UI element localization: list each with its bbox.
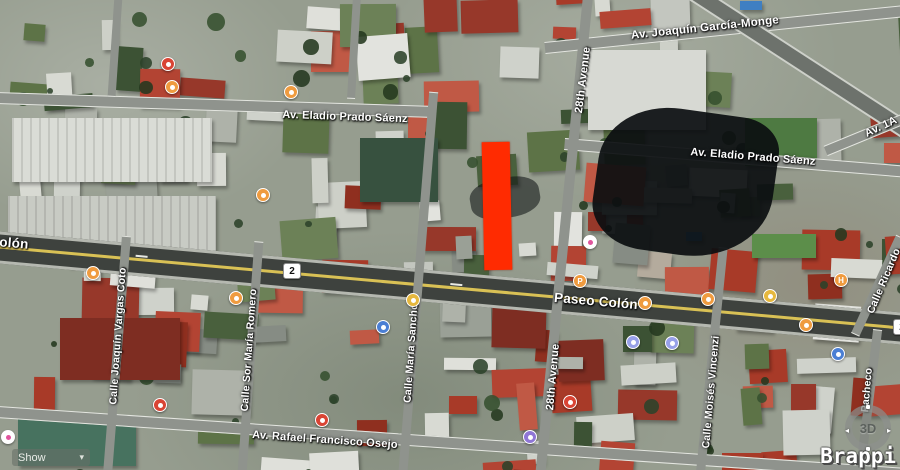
map-marker[interactable] [523,430,537,444]
rotate-right-icon: ▸ [887,427,891,435]
tilt-down-icon [866,447,870,451]
rotate-left-icon: ◂ [845,427,849,435]
show-dropdown[interactable]: Show ▾ [12,449,90,466]
map-marker[interactable] [563,395,577,409]
poi-icon [706,297,711,302]
map-marker[interactable] [626,335,640,349]
poi-icon [158,403,163,408]
map-marker[interactable] [153,398,167,412]
map-marker[interactable] [406,293,420,307]
map-marker[interactable] [763,289,777,303]
show-dropdown-label: Show [18,452,46,464]
map-marker[interactable] [165,80,179,94]
map-marker[interactable]: H [834,273,848,287]
poi-icon [170,85,175,90]
poi-icon [234,296,239,301]
poi-icon [643,301,648,306]
tilt-up-icon [866,405,870,409]
map-marker[interactable] [1,430,15,444]
map-marker[interactable] [161,57,175,71]
transit-icon [381,325,386,330]
map-marker[interactable] [665,336,679,350]
satellite-map[interactable]: Av. Joaquín García-MongeAv. Eladio Prado… [0,0,900,470]
map-marker[interactable] [256,188,270,202]
poi-icon [261,193,266,198]
hotel-icon: H [838,276,844,285]
map-marker[interactable] [315,413,329,427]
map-marker[interactable] [86,266,100,280]
poi-markers-layer: PH [0,0,900,470]
poi-icon [320,418,325,423]
poi-icon [768,294,773,299]
transit-icon [670,341,675,346]
3d-button-label: 3D [860,421,877,436]
poi-icon [411,298,416,303]
transit-icon [528,435,533,440]
map-marker[interactable] [229,291,243,305]
poi-icon [166,62,171,67]
map-marker[interactable] [376,320,390,334]
map-marker[interactable]: P [573,274,587,288]
poi-icon [568,400,573,405]
map-marker[interactable] [583,235,597,249]
restaurant-icon [588,240,593,245]
poi-icon [289,90,294,95]
transit-icon [631,340,636,345]
shopping-icon [6,435,11,440]
map-marker[interactable] [831,347,845,361]
parking-icon: P [577,277,582,286]
map-marker[interactable] [799,318,813,332]
map-marker[interactable] [638,296,652,310]
poi-icon [91,271,96,276]
3d-button[interactable]: 3D ◂ ▸ [845,405,891,451]
chevron-down-icon: ▾ [79,452,84,463]
transit-icon [836,352,841,357]
poi-icon [804,323,809,328]
map-marker[interactable] [701,292,715,306]
map-marker[interactable] [284,85,298,99]
